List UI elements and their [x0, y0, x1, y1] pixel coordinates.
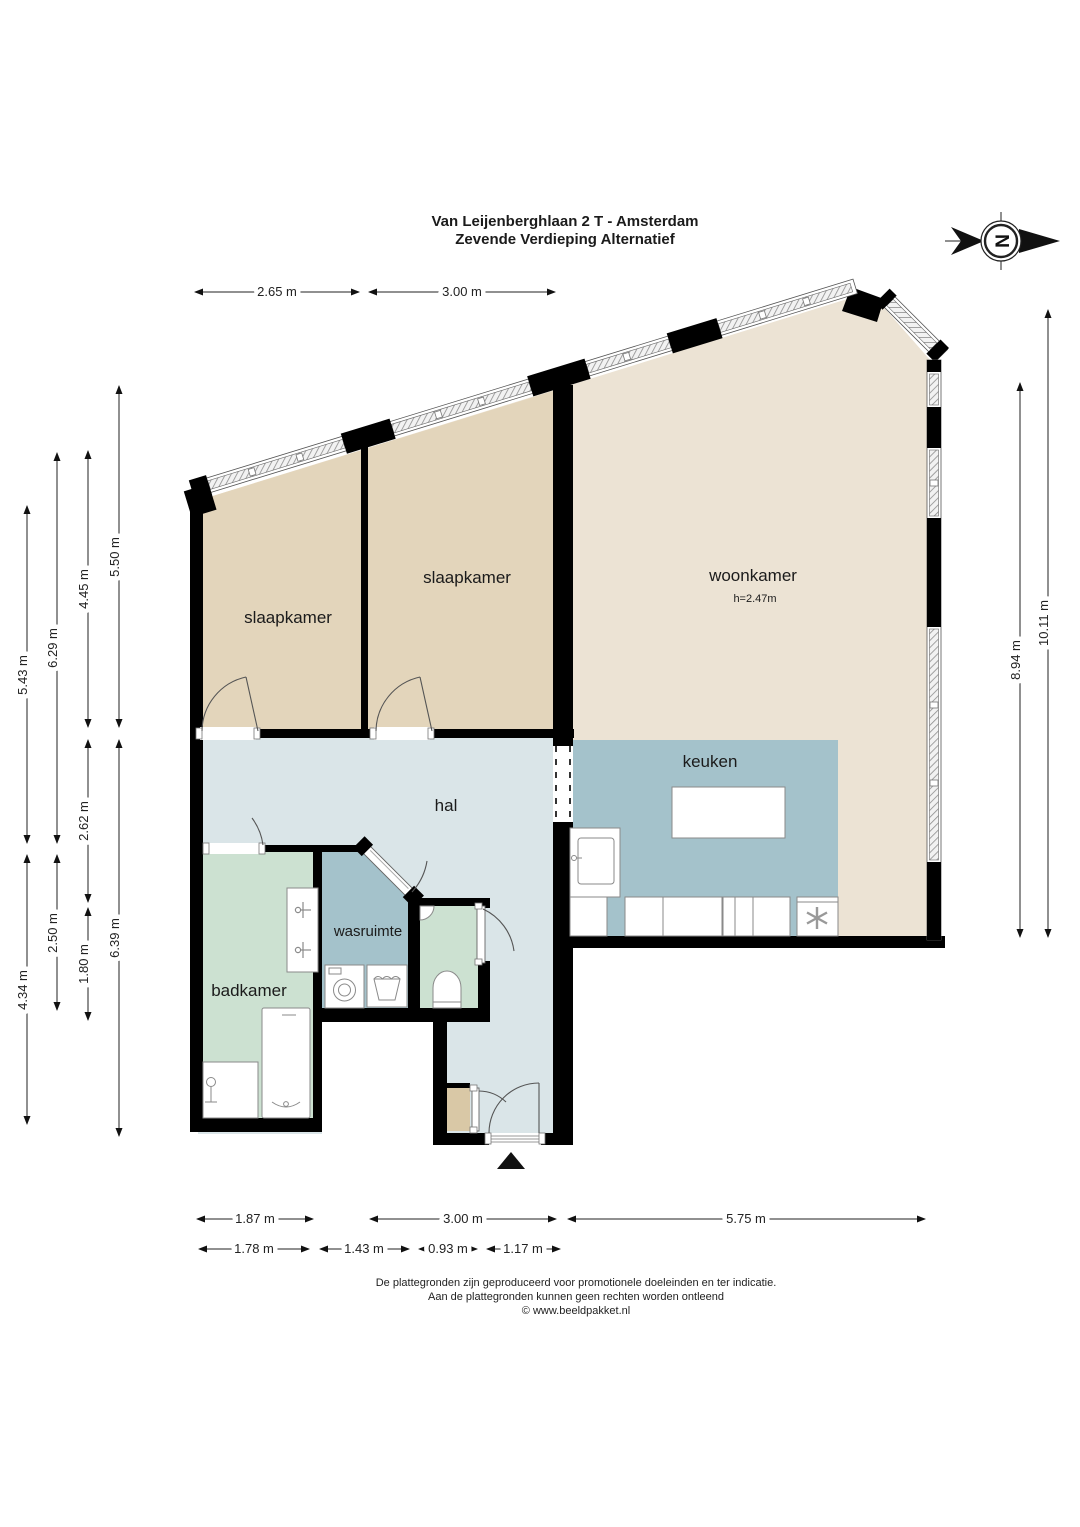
- door-toilet: [477, 906, 485, 963]
- kitchen-cabinet: [735, 897, 753, 936]
- label-hal: hal: [435, 796, 458, 815]
- plan-title: Van Leijenberghlaan 2 T - Amsterdam Zeve…: [431, 213, 698, 248]
- kitchen-cabinet: [625, 897, 663, 936]
- kitchen-cabinet: [723, 897, 735, 936]
- north-arrow-icon: N: [945, 212, 1060, 270]
- wall-bedroom-partition: [361, 447, 368, 731]
- dim-left-639: 6.39 m: [107, 918, 122, 958]
- wall-bedroom2-living: [553, 385, 573, 738]
- label-slaapkamer-left: slaapkamer: [244, 608, 332, 627]
- north-arrow-east-point: [1019, 229, 1060, 253]
- wall-bottom-right: [556, 936, 945, 948]
- vanity-double-sink: [287, 888, 318, 972]
- dim-bottom2-143: 1.43 m: [344, 1241, 384, 1256]
- kitchen-cabinet: [570, 897, 607, 936]
- wall-chunk: [927, 360, 941, 372]
- kitchen-island: [672, 787, 785, 838]
- label-woonkamer: woonkamer: [708, 566, 797, 585]
- void-outside: [322, 1022, 433, 1134]
- dim-left-629: 6.29 m: [45, 628, 60, 668]
- footer-disclaimer: De plattegronden zijn geproduceerd voor …: [376, 1277, 777, 1317]
- dim-bottom-300: 3.00 m: [443, 1211, 483, 1226]
- door-gap-slaapkamer-left: [200, 727, 256, 740]
- floor-plan-page: Van Leijenberghlaan 2 T - Amsterdam Zeve…: [0, 0, 1080, 1527]
- dim-bottom-187: 1.87 m: [235, 1211, 275, 1226]
- label-wasruimte: wasruimte: [333, 923, 402, 940]
- room-slaapkamer-mid: [368, 391, 553, 731]
- laundry-basket-icon: [367, 965, 407, 1007]
- dim-left-445: 4.45 m: [76, 569, 91, 609]
- wall-chunk: [927, 518, 941, 627]
- door-gap-badkamer: [207, 843, 261, 854]
- footer-line3: © www.beeldpakket.nl: [522, 1305, 630, 1317]
- wall-wasruimte-toilet-bottom: [313, 1008, 490, 1022]
- label-badkamer: badkamer: [211, 981, 287, 1000]
- shower-icon: [203, 1062, 258, 1118]
- toilet-icon: [433, 971, 461, 1008]
- dim-left-262: 2.62 m: [76, 801, 91, 841]
- stove-icon: [797, 897, 838, 936]
- dim-bottom-575: 5.75 m: [726, 1211, 766, 1226]
- passage-hal-keuken: [553, 746, 573, 822]
- dim-left-543: 5.43 m: [15, 655, 30, 695]
- door-gap-slaapkamer-mid: [374, 727, 430, 740]
- dim-bottom2-117: 1.17 m: [503, 1241, 543, 1256]
- dim-top-2: 3.00 m: [442, 284, 482, 299]
- sink-icon: [578, 838, 614, 884]
- kitchen-cabinet: [753, 897, 790, 936]
- window-band-right: [927, 360, 941, 940]
- label-slaapkamer-mid: slaapkamer: [423, 568, 511, 587]
- title-line1: Van Leijenberghlaan 2 T - Amsterdam: [431, 213, 698, 230]
- floor-plan-svg: Van Leijenberghlaan 2 T - Amsterdam Zeve…: [0, 0, 1080, 1527]
- dim-left-labels: 5.50 m 4.45 m 6.29 m 5.43 m 2.62 m 2.50 …: [15, 537, 122, 1010]
- label-ceiling-height: h=2.47m: [733, 593, 776, 605]
- bathtub-icon: [262, 1008, 310, 1118]
- wall-chunk: [927, 862, 941, 940]
- window-glass: [930, 374, 939, 405]
- dim-left-250: 2.50 m: [45, 913, 60, 953]
- meterkast-closet: [447, 1088, 470, 1131]
- wall-meterkast-top: [433, 1083, 470, 1088]
- dim-bottom2-093: 0.93 m: [428, 1241, 468, 1256]
- window-glass: [930, 629, 939, 860]
- north-letter: N: [991, 234, 1012, 248]
- kitchen-cabinet: [663, 897, 722, 936]
- wall-chunk: [927, 407, 941, 448]
- label-keuken: keuken: [683, 752, 738, 771]
- dim-right-894: 8.94 m: [1008, 640, 1023, 680]
- dim-left-434: 4.34 m: [15, 970, 30, 1010]
- footer-line1: De plattegronden zijn geproduceerd voor …: [376, 1277, 777, 1289]
- door-meterkast: [472, 1088, 479, 1131]
- dim-top-1: 2.65 m: [257, 284, 297, 299]
- washing-machine-icon: [325, 965, 364, 1008]
- footer-line2: Aan de plattegronden kunnen geen rechten…: [428, 1291, 724, 1303]
- dim-right-1011: 10.11 m: [1036, 600, 1051, 646]
- wall-left: [190, 490, 203, 1132]
- room-slaapkamer-left: [203, 450, 362, 731]
- wall-wasruimte-toilet: [408, 898, 420, 1008]
- entrance-marker-icon: [497, 1152, 525, 1169]
- wall-badkamer-bottom: [190, 1118, 322, 1132]
- title-line2: Zevende Verdieping Alternatief: [455, 231, 676, 248]
- dim-left-550: 5.50 m: [107, 537, 122, 577]
- dim-left-180: 1.80 m: [76, 944, 91, 984]
- dim-bottom2-178: 1.78 m: [234, 1241, 274, 1256]
